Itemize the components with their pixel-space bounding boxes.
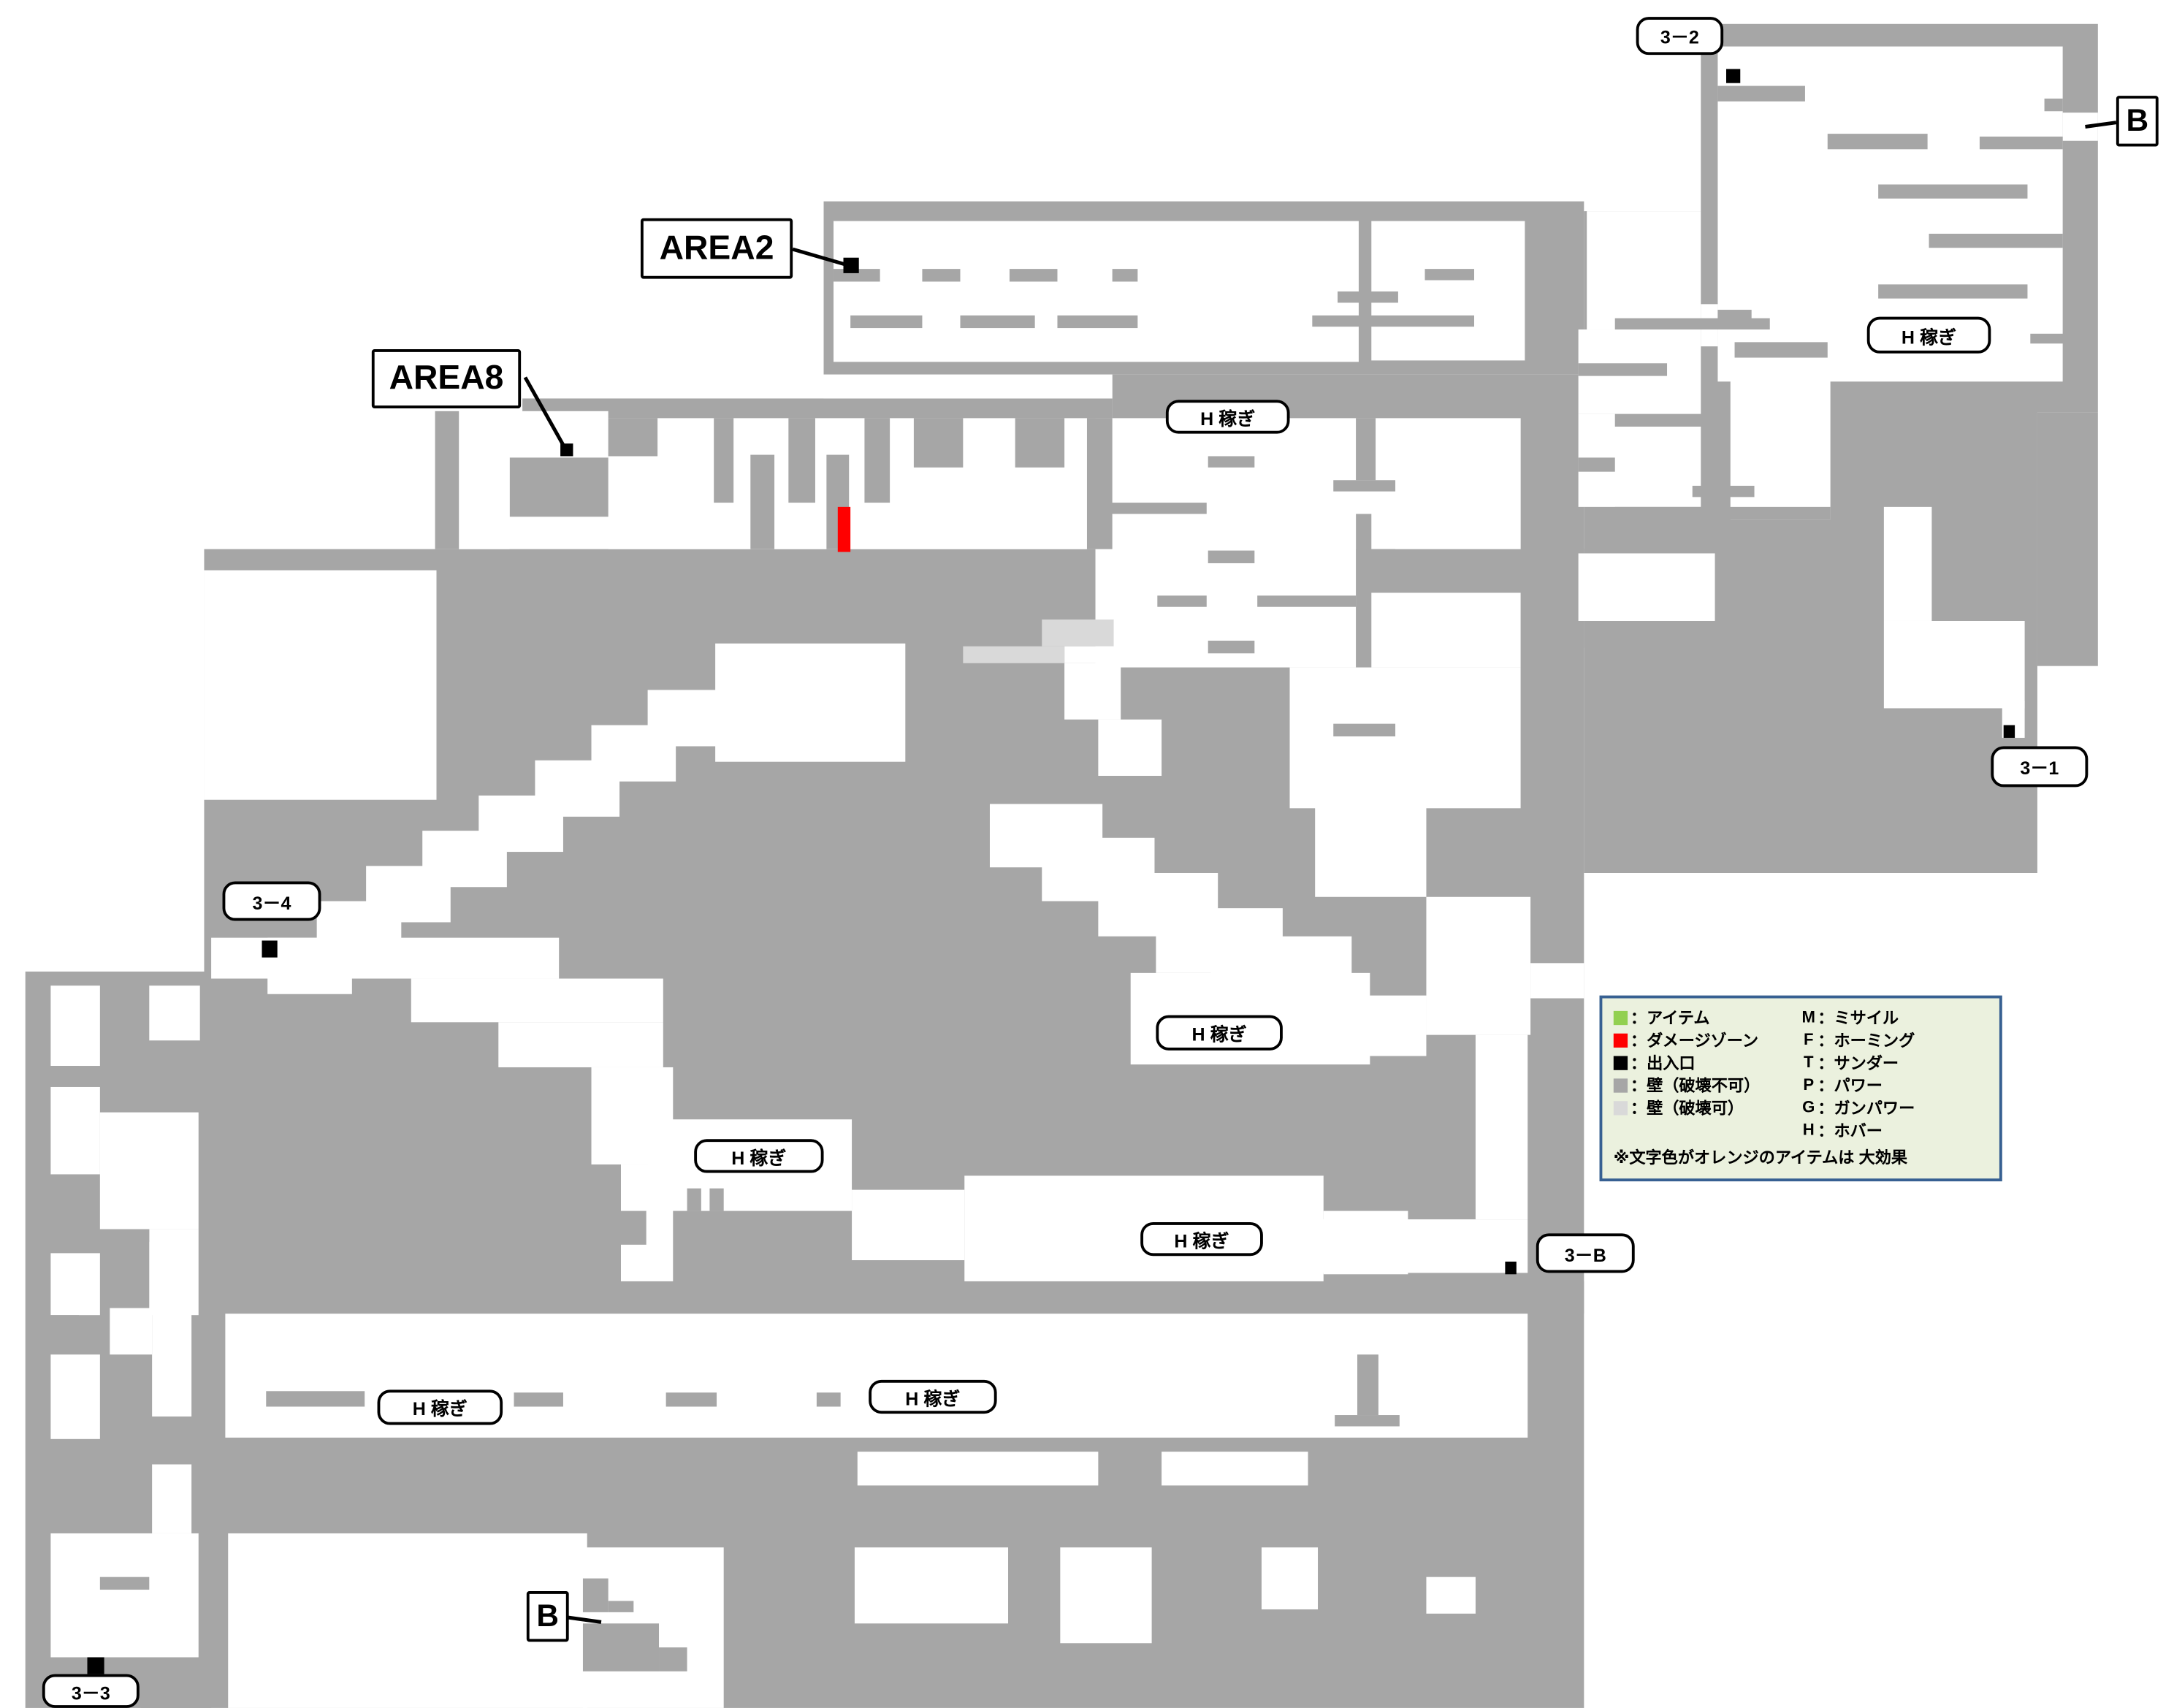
wall-dash — [850, 316, 922, 328]
legend-color-swatch — [1614, 1078, 1628, 1092]
corridor-area — [498, 1022, 663, 1067]
legend-weapon-H: H：ホバー — [1799, 1119, 1983, 1142]
legend-color-swatch — [1614, 1011, 1628, 1025]
b-bottom-label: B — [527, 1591, 569, 1642]
wall-pillar — [687, 1189, 701, 1211]
wall-dash — [1208, 641, 1255, 653]
wall-pillar — [609, 1601, 634, 1612]
wall-pillar — [750, 455, 774, 549]
exit-3-b-label: 3－B — [1536, 1233, 1635, 1273]
wall-block — [1521, 387, 1584, 648]
door-3-2 — [1726, 69, 1740, 83]
legend-weapon-F: F：ホーミング — [1799, 1029, 1983, 1052]
legend-weapon-label: ホーミング — [1834, 1029, 1915, 1052]
wall-pillar — [1015, 418, 1064, 467]
corridor-area — [1098, 720, 1162, 776]
wall-dash — [1057, 316, 1137, 328]
wall-dash — [514, 1392, 563, 1406]
legend-item-4: ：壁（破壊可） — [1614, 1097, 1799, 1119]
wall-dash — [817, 1392, 841, 1406]
door-3-1 — [2004, 725, 2015, 738]
map-page: AREA2AREA8BB3－23－13－43－33－BH 稼ぎH 稼ぎH 稼ぎH… — [0, 0, 2174, 1708]
corridor-area — [50, 1533, 198, 1658]
area8-label: AREA8 — [372, 349, 521, 408]
wall-pillar — [1357, 1354, 1378, 1415]
wall-dash — [1257, 595, 1356, 606]
legend-separator: ： — [1630, 1007, 1647, 1029]
corridor-area — [1395, 514, 1521, 549]
corridor-area — [50, 1253, 99, 1315]
legend-separator: ： — [1630, 1052, 1647, 1075]
corridor-area — [2063, 113, 2098, 141]
legend-separator: ： — [1818, 1119, 1834, 1142]
legend-color-swatch — [1614, 1034, 1628, 1048]
legend-separator: ： — [1630, 1097, 1647, 1119]
corridor-area — [1884, 507, 1932, 621]
legend-separator: ： — [1818, 1052, 1834, 1075]
b-top-label: B — [2116, 96, 2159, 146]
legend-weapon-T: T：サンダー — [1799, 1052, 1983, 1075]
legend-weapon-label: ミサイル — [1834, 1007, 1899, 1029]
wall-block — [2037, 413, 2098, 666]
corridor-area — [1315, 804, 1426, 897]
corridor-area — [149, 985, 199, 1040]
wall-dash — [1615, 319, 1770, 329]
wall-dash — [1113, 269, 1138, 281]
legend-separator: ： — [1630, 1075, 1647, 1097]
legend-color-swatch — [1614, 1101, 1628, 1115]
h-farm-1-label: H 稼ぎ — [1867, 317, 1991, 354]
wall-dash — [960, 316, 1034, 328]
legend-separator: ： — [1818, 1075, 1834, 1097]
wall-block — [191, 1308, 211, 1417]
wall-block — [1371, 549, 1568, 593]
corridor-area — [1884, 621, 2025, 708]
wall-dash — [1828, 134, 1928, 149]
wall-dash — [1333, 724, 1395, 736]
legend-weapon-label: ホバー — [1834, 1119, 1882, 1142]
wall-dash — [666, 1392, 717, 1406]
wall-dash — [50, 1315, 79, 1327]
legend-letter: F — [1799, 1032, 1818, 1049]
wall-dash — [1208, 456, 1255, 467]
corridor-area — [715, 644, 905, 762]
wall-dash — [1104, 503, 1207, 514]
corridor-area — [110, 1308, 152, 1355]
wall-dash — [1693, 486, 1755, 497]
door-3-4 — [262, 941, 277, 958]
wall-block — [522, 398, 1113, 418]
legend-letter: P — [1799, 1077, 1818, 1094]
legend-item-label: 出入口 — [1647, 1052, 1695, 1075]
door-area8 — [560, 443, 573, 456]
door-3-3 — [87, 1658, 104, 1674]
legend-letter: G — [1799, 1099, 1818, 1116]
legend-weapon-P: P：パワー — [1799, 1075, 1983, 1097]
legend-item-2: ：出入口 — [1614, 1052, 1799, 1075]
wall-pillar — [1356, 418, 1376, 480]
wall-dash — [2030, 334, 2080, 343]
legend-separator: ： — [1630, 1029, 1647, 1052]
wall-dash — [1425, 269, 1474, 280]
wall-dash — [50, 1066, 79, 1078]
corridor-area — [149, 1229, 198, 1316]
wall-dash — [2045, 99, 2063, 111]
legend-letter: H — [1799, 1122, 1818, 1139]
wall-dash — [1929, 234, 2063, 248]
corridor-area — [1426, 897, 1530, 1035]
corridor-area — [1322, 1219, 1527, 1273]
corridor-area — [1096, 418, 1521, 514]
corridor-area — [1289, 668, 1520, 809]
door-3-b — [1505, 1262, 1516, 1274]
wall-dash — [1878, 184, 2027, 198]
wall-pillar — [788, 418, 815, 503]
legend-note: ※文字色がオレンジのアイテムは 大効果 — [1614, 1148, 1988, 1170]
wall-pillar — [914, 418, 963, 467]
h-farm-3-label: H 稼ぎ — [1156, 1015, 1282, 1051]
legend-weapon-label: サンダー — [1834, 1052, 1899, 1075]
corridor-area — [1064, 663, 1121, 720]
corridor-area — [459, 457, 509, 549]
legend-weapon-M: M：ミサイル — [1799, 1007, 1983, 1029]
h-farm-4-label: H 稼ぎ — [694, 1139, 823, 1173]
corridor-area — [1476, 1035, 1527, 1219]
wall-dash — [922, 269, 960, 281]
wall-pillar — [864, 418, 890, 503]
corridor-area — [50, 1354, 99, 1439]
legend-item-label: アイテム — [1647, 1007, 1709, 1029]
legend-item-label: 壁（破壊不可） — [1647, 1075, 1760, 1097]
corridor-area — [1211, 937, 1352, 1000]
exit-3-3-label: 3－3 — [42, 1674, 140, 1708]
legend-letter: M — [1799, 1010, 1818, 1026]
exit-3-2-label: 3－2 — [1636, 17, 1723, 55]
legend-weapon-label: ガンパワー — [1834, 1097, 1915, 1119]
h-farm-6-label: H 稼ぎ — [378, 1389, 503, 1425]
corridor-area — [204, 571, 436, 800]
legend-weapon-label: パワー — [1834, 1075, 1882, 1097]
wall-pillar — [609, 418, 657, 456]
wall-dash — [100, 1482, 149, 1494]
corridor-area — [852, 1190, 964, 1260]
corridor-area — [1060, 1547, 1151, 1643]
corridor-area — [152, 1308, 191, 1417]
area2-label: AREA2 — [641, 218, 793, 279]
legend-item-1: ：ダメージゾーン — [1614, 1029, 1799, 1052]
corridor-area — [824, 375, 1113, 399]
corridor-area — [459, 411, 608, 458]
destructible-wall-marker — [963, 647, 1064, 663]
wall-dash — [1157, 595, 1206, 606]
wall-pillar — [659, 1647, 687, 1671]
corridor-area — [855, 1547, 1008, 1623]
wall-dash — [1615, 507, 1831, 519]
h-farm-7-label: H 稼ぎ — [869, 1380, 996, 1414]
exit-3-4-label: 3－4 — [223, 882, 321, 921]
destructible-wall-marker — [1042, 619, 1113, 647]
wall-dash — [1579, 457, 1615, 471]
wall-pillar — [714, 418, 733, 503]
wall-dash — [1579, 363, 1667, 375]
wall-pillar — [709, 1189, 723, 1211]
wall-dash — [1312, 316, 1474, 327]
legend-weapon-G: G：ガンパワー — [1799, 1097, 1983, 1119]
damage-zone-marker — [838, 507, 850, 552]
wall-dash — [1010, 269, 1058, 281]
wall-dash — [266, 1391, 365, 1406]
legend-letter-column: M：ミサイルF：ホーミングT：サンダーP：パワーG：ガンパワーH：ホバー — [1799, 1007, 1983, 1142]
legend-item-label: 壁（破壊可） — [1647, 1097, 1744, 1119]
legend-box: ：アイテム：ダメージゾーン：出入口：壁（破壊不可）：壁（破壊可） M：ミサイルF… — [1600, 996, 2002, 1181]
wall-block — [1356, 514, 1371, 668]
corridor-area — [1579, 553, 1715, 621]
wall-dash — [1338, 291, 1398, 302]
legend-item-0: ：アイテム — [1614, 1007, 1799, 1029]
legend-item-3: ：壁（破壊不可） — [1614, 1075, 1799, 1097]
wall-block — [435, 411, 459, 549]
wall-dash — [1717, 86, 1804, 102]
wall-dash — [100, 1577, 149, 1590]
legend-swatch-column: ：アイテム：ダメージゾーン：出入口：壁（破壊不可）：壁（破壊可） — [1614, 1007, 1799, 1142]
wall-dash — [1980, 137, 2063, 149]
corridor-area — [1262, 1547, 1318, 1609]
wall-dash — [1735, 342, 1828, 357]
wall-dash — [1615, 414, 1722, 427]
corridor-area — [858, 1452, 1099, 1485]
wall-dash — [1208, 551, 1255, 563]
corridor-area — [100, 1113, 199, 1229]
corridor-area — [152, 1464, 191, 1533]
corridor-area — [1587, 211, 1701, 329]
corridor-area — [50, 985, 99, 1066]
door-area2 — [844, 258, 859, 273]
corridor-area — [50, 1087, 99, 1174]
wall-pillar — [621, 1211, 647, 1245]
wall-dash — [100, 1229, 149, 1242]
legend-separator: ： — [1818, 1007, 1834, 1029]
wall-block — [1359, 221, 1371, 291]
wall-pillar — [1087, 418, 1113, 549]
wall-dash — [1335, 1415, 1400, 1426]
exit-3-1-label: 3－1 — [1991, 747, 2088, 788]
wall-pillar — [583, 1579, 609, 1612]
wall-dash — [1333, 480, 1395, 491]
legend-letter: T — [1799, 1055, 1818, 1072]
h-farm-5-label: H 稼ぎ — [1140, 1222, 1263, 1256]
corridor-area — [1426, 1577, 1475, 1614]
corridor-area — [1162, 1452, 1308, 1485]
wall-dash — [149, 1040, 199, 1053]
wall-dash — [365, 1441, 465, 1453]
legend-color-swatch — [1614, 1056, 1628, 1070]
wall-pillar — [583, 1623, 659, 1671]
corridor-area — [411, 979, 663, 1023]
corridor-area — [1530, 963, 1584, 998]
legend-columns: ：アイテム：ダメージゾーン：出入口：壁（破壊不可）：壁（破壊可） M：ミサイルF… — [1614, 1007, 1988, 1142]
legend-separator: ： — [1818, 1029, 1834, 1052]
corridor-area — [1371, 592, 1520, 667]
h-farm-2-label: H 稼ぎ — [1166, 400, 1290, 433]
corridor-area — [834, 221, 1359, 362]
legend-separator: ： — [1818, 1097, 1834, 1119]
wall-dash — [1878, 284, 2027, 298]
corridor-area — [1353, 996, 1426, 1056]
legend-item-label: ダメージゾーン — [1647, 1029, 1758, 1052]
